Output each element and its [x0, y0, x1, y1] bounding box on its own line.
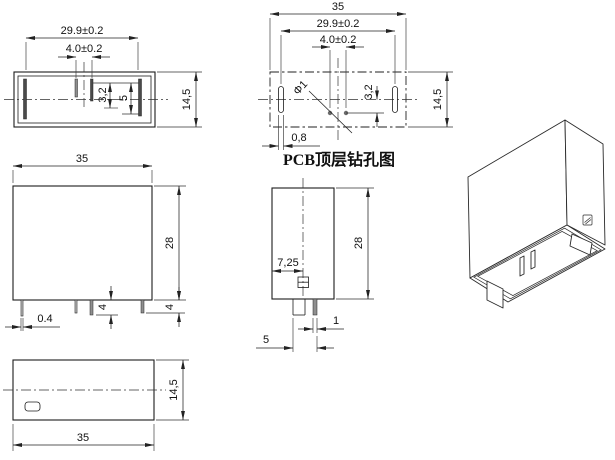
view-pcb-drill: Φ1 3,2 0,8 PCB顶层钻孔图 35 29.9±0.2: [258, 1, 453, 169]
dim-text: 4.0±0.2: [320, 34, 357, 46]
body-outline: [13, 186, 152, 300]
pin-slot-left: [24, 79, 27, 119]
view-isometric: [468, 120, 605, 308]
relay-dimension-drawing: 29.9±0.2 4.0±0.2 3,2 5 14,5: [0, 0, 615, 460]
dim-text: 4: [164, 304, 176, 310]
tab-pin-side: [313, 299, 317, 315]
dim-text: 14,5: [432, 89, 444, 110]
iso-side-face: [565, 120, 605, 245]
dim-text: 0,8: [291, 132, 306, 144]
view-top: 14,5 35: [3, 360, 189, 451]
view-front: 35 28 4 4 0.4: [5, 153, 186, 331]
dim-text: 14,5: [168, 379, 180, 400]
dim-depth-pcb: 14,5: [408, 72, 453, 127]
dim-text: Φ1: [291, 78, 310, 97]
dim-text: 4: [97, 304, 109, 310]
pin-slot-right: [139, 79, 142, 116]
iso-side-marking: [583, 215, 592, 225]
iso-coil-pin-1: [520, 256, 524, 276]
dim-text: 35: [77, 432, 89, 444]
dim-offset-pcb: 3,2: [363, 84, 377, 127]
dim-width-top: 35: [13, 424, 154, 451]
pin-coil-1: [75, 300, 77, 313]
dim-text: 5: [263, 334, 269, 346]
dim-text: 28: [353, 237, 365, 249]
dim-text: 3,2: [363, 84, 375, 99]
dim-depth-bottom: 14,5: [157, 72, 202, 127]
dim-text: 5: [118, 95, 130, 101]
pin-left: [21, 300, 23, 316]
dim-width-front: 35: [13, 153, 152, 183]
dim-pin-length-bottom: 5: [118, 83, 139, 114]
pin-coil-2: [90, 300, 93, 315]
dim-text: 14,5: [181, 89, 193, 110]
dim-text: 1: [333, 315, 339, 327]
dim-pin-thickness-front: 0.4: [5, 313, 60, 331]
dim-slot-width-pcb: 0,8: [262, 115, 320, 150]
dim-text: 28: [164, 237, 176, 249]
dim-height-front: 28: [154, 186, 186, 300]
technical-drawing-page: 29.9±0.2 4.0±0.2 3,2 5 14,5: [0, 0, 615, 460]
view-bottom: 29.9±0.2 4.0±0.2 3,2 5 14,5: [4, 25, 202, 127]
dim-tab-thickness-side: 1: [298, 315, 344, 333]
dim-offset-bottom: 3,2: [93, 83, 139, 108]
dim-text: 7,25: [277, 257, 298, 269]
iso-coil-pin-2: [531, 250, 535, 269]
pin-slot-coil-1: [75, 79, 78, 97]
pcb-view-title: PCB顶层钻孔图: [283, 150, 395, 169]
dim-text: 29.9±0.2: [61, 25, 104, 37]
dim-text: 4.0±0.2: [66, 43, 103, 55]
label-recess: [25, 402, 40, 411]
dim-pin-span-side: 5: [256, 318, 334, 352]
dim-text: 0.4: [37, 313, 52, 325]
dim-text: 35: [76, 153, 88, 165]
dim-text: 35: [332, 1, 344, 13]
dim-text: 29.9±0.2: [317, 18, 360, 30]
dim-hole-dia-pcb: Φ1: [291, 78, 352, 133]
dim-inner-pin-span-bottom: 4.0±0.2: [58, 43, 110, 78]
dim-height-side: 28: [336, 188, 374, 299]
pin-slot-coil-2: [91, 79, 94, 101]
dim-pin-length-mid-front: 4: [96, 286, 118, 329]
pin-right: [141, 300, 144, 313]
view-side: 7,25 28 1 5: [256, 178, 374, 352]
dim-center-offset-side: 7,25: [272, 257, 303, 271]
dim-pin-span-pcb: 29.9±0.2: [281, 18, 395, 84]
dim-text: 3,2: [97, 87, 109, 102]
